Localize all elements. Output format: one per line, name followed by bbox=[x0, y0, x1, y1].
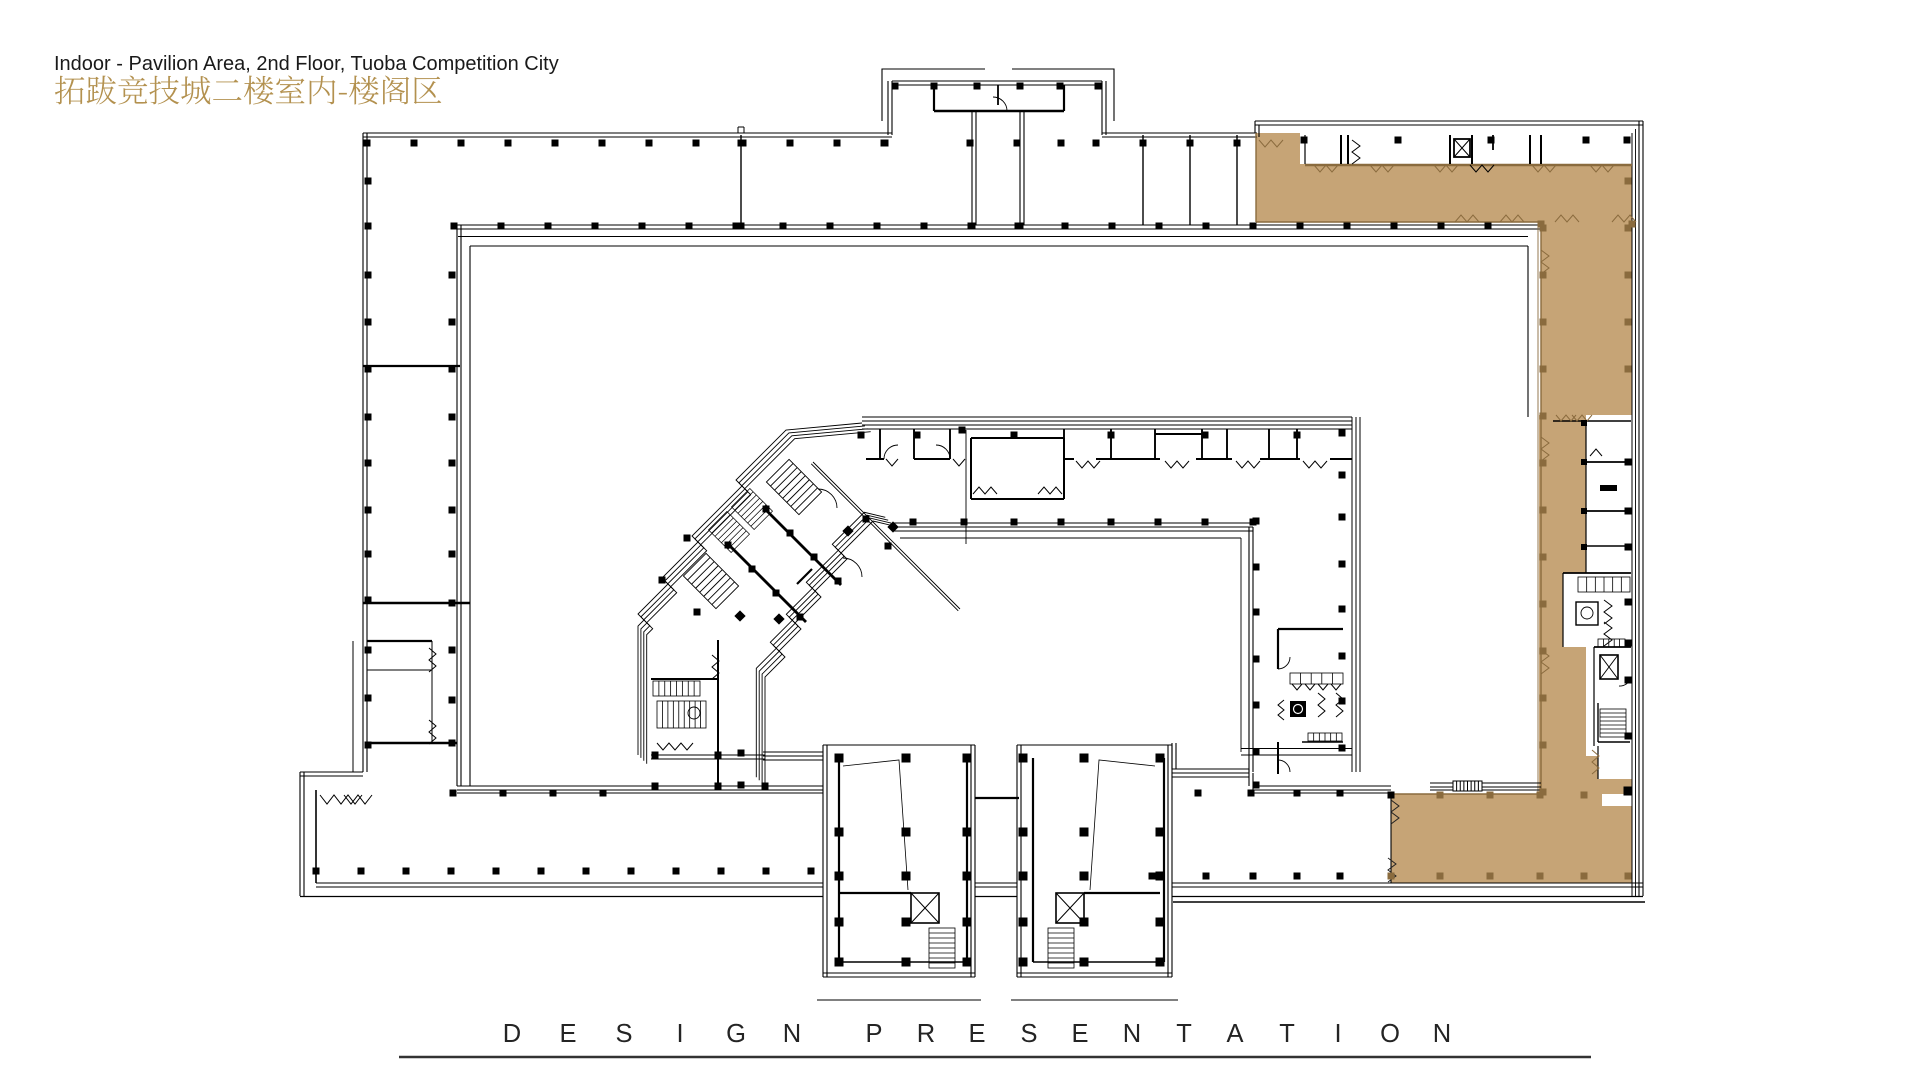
svg-text:T: T bbox=[1279, 1020, 1295, 1048]
svg-text:O: O bbox=[1380, 1020, 1400, 1048]
svg-text:R: R bbox=[917, 1020, 935, 1048]
svg-text:N: N bbox=[783, 1020, 801, 1048]
svg-text:E: E bbox=[968, 1020, 985, 1048]
svg-text:S: S bbox=[1020, 1020, 1037, 1048]
svg-text:N: N bbox=[1123, 1020, 1141, 1048]
svg-text:E: E bbox=[1071, 1020, 1088, 1048]
svg-text:G: G bbox=[726, 1020, 746, 1048]
svg-text:I: I bbox=[1334, 1020, 1341, 1048]
svg-text:P: P bbox=[865, 1020, 882, 1048]
svg-text:E: E bbox=[559, 1020, 576, 1048]
svg-text:S: S bbox=[615, 1020, 632, 1048]
svg-text:Indoor - Pavilion Area, 2nd Fl: Indoor - Pavilion Area, 2nd Floor, Tuoba… bbox=[54, 53, 559, 75]
svg-text:T: T bbox=[1176, 1020, 1192, 1048]
svg-text:I: I bbox=[676, 1020, 683, 1048]
svg-text:N: N bbox=[1433, 1020, 1451, 1048]
svg-text:D: D bbox=[503, 1020, 521, 1048]
svg-text:A: A bbox=[1226, 1020, 1243, 1048]
